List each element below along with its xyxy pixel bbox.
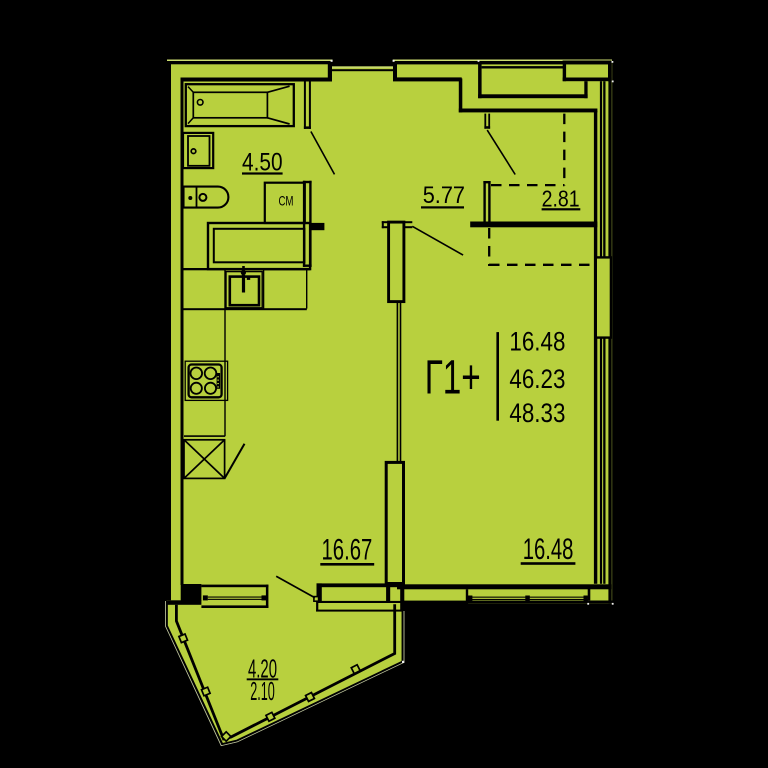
svg-text:48.33: 48.33: [509, 398, 565, 428]
svg-text:4.50: 4.50: [242, 148, 283, 176]
svg-text:2.81: 2.81: [542, 185, 580, 211]
svg-text:16.48: 16.48: [509, 326, 565, 356]
svg-text:СМ: СМ: [279, 193, 294, 209]
svg-text:46.23: 46.23: [509, 364, 565, 394]
svg-text:16.67: 16.67: [322, 534, 373, 567]
svg-text:16.48: 16.48: [523, 533, 574, 566]
svg-text:2.10: 2.10: [250, 676, 275, 706]
svg-text:Г1+: Г1+: [425, 351, 481, 404]
svg-text:5.77: 5.77: [423, 182, 465, 209]
